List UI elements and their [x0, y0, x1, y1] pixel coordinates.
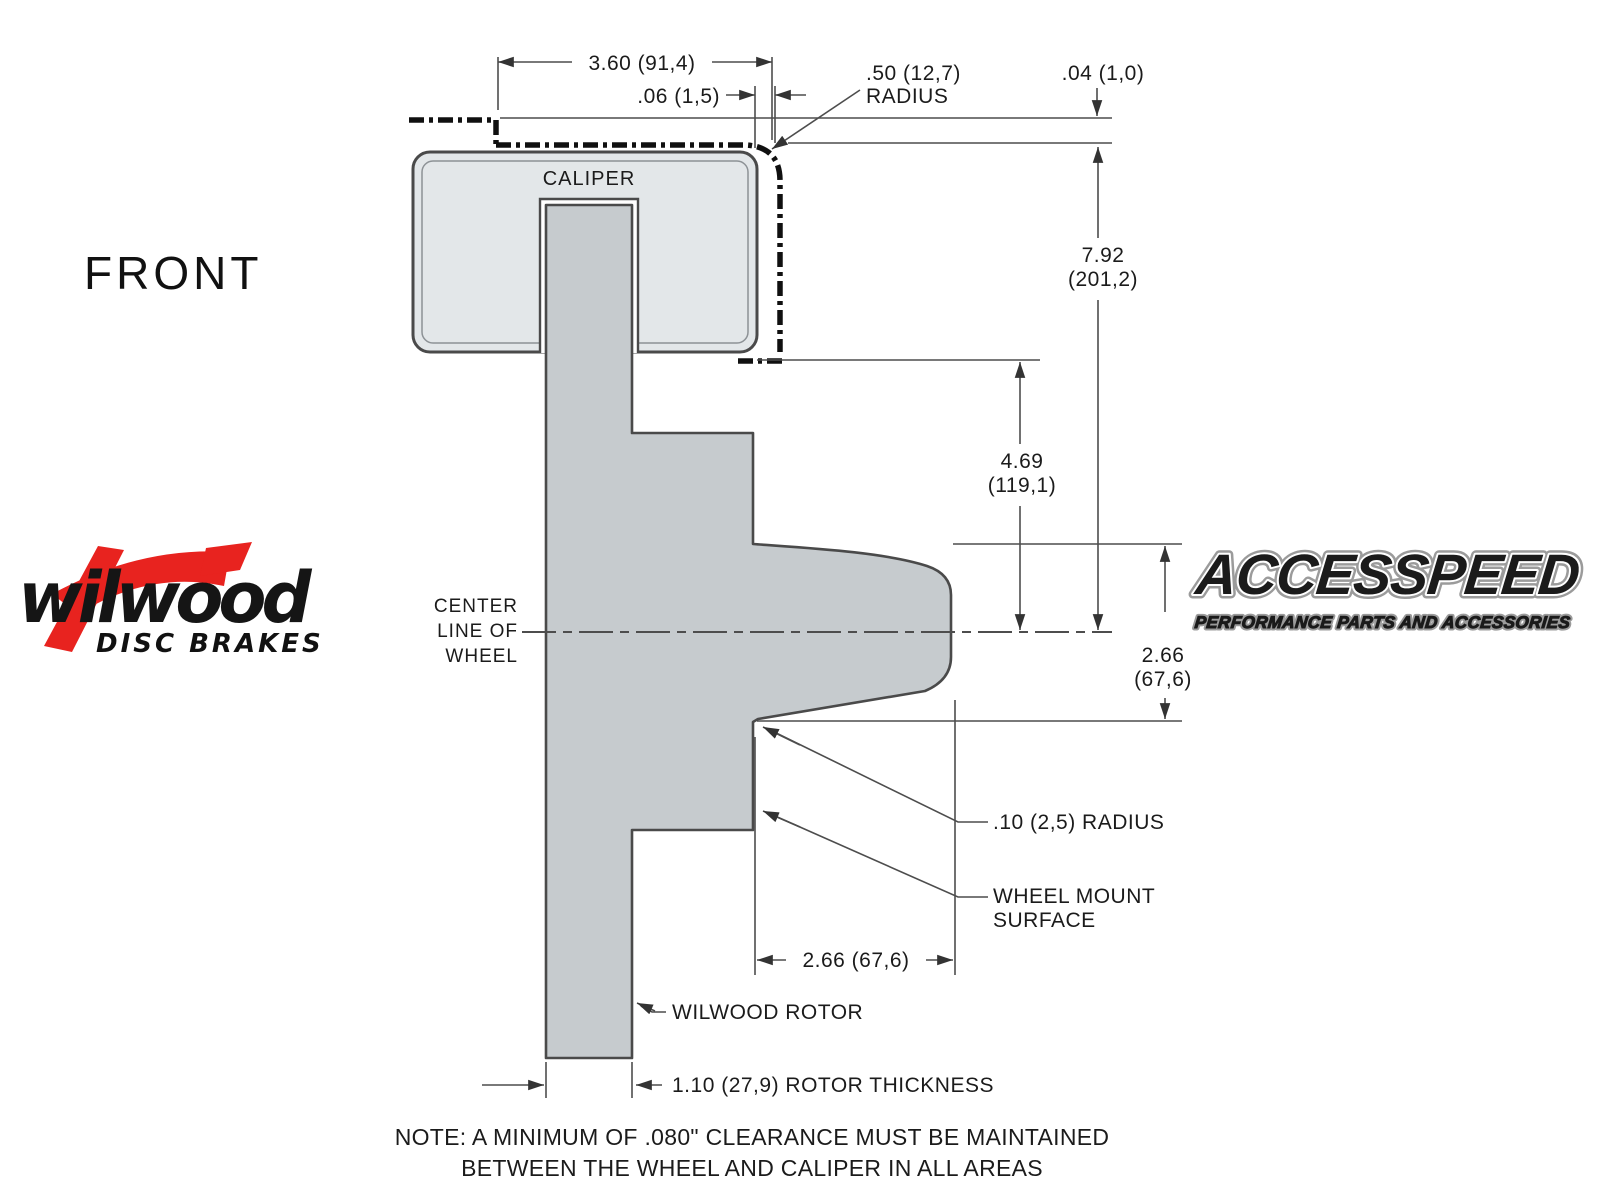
corner-radius-text-2: RADIUS [866, 85, 948, 108]
rotor-callout-text: WILWOOD ROTOR [672, 1001, 863, 1024]
note-line-1: NOTE: A MINIMUM OF .080" CLEARANCE MUST … [395, 1124, 1110, 1150]
callout-rotor: WILWOOD ROTOR [637, 1001, 863, 1024]
dim-wheel-clearance-text: .04 (1,0) [1062, 62, 1145, 85]
centerline-label-2: LINE OF [437, 621, 518, 642]
callout-fillet-radius: .10 (2,5) RADIUS [763, 727, 1164, 834]
dim-wheel-clearance: .04 (1,0) [1062, 62, 1145, 116]
caliper-label: CALIPER [543, 168, 636, 190]
wilwood-tagline-text: DISC BRAKES [96, 629, 324, 659]
note-block: NOTE: A MINIMUM OF .080" CLEARANCE MUST … [395, 1124, 1110, 1181]
dim-caliper-width-text: 3.60 (91,4) [588, 52, 695, 75]
dim-caliper-width: 3.60 (91,4) [498, 52, 772, 140]
centerline-label: CENTER LINE OF WHEEL [434, 596, 518, 667]
rotor-thickness-text: 1.10 (27,9) ROTOR THICKNESS [672, 1074, 994, 1097]
dim-caliper-wheel-gap-text: .06 (1,5) [637, 85, 720, 108]
wheel-mount-text-2: SURFACE [993, 909, 1096, 932]
dim-mount-offset: 2.66 (67,6) [755, 700, 955, 975]
dim-mount-offset-text: 2.66 (67,6) [802, 949, 909, 972]
wheel-mount-text-1: WHEEL MOUNT [993, 885, 1155, 908]
wilwood-logo: wilwood DISC BRAKES [18, 542, 324, 659]
centerline-label-1: CENTER [434, 596, 518, 617]
callout-corner-radius: .50 (12,7) RADIUS [772, 62, 961, 149]
brake-clearance-diagram: 3.60 (91,4) .06 (1,5) .50 (12,7) RADIUS … [0, 0, 1600, 1200]
dim-wheel-depth-text-1: 7.92 [1082, 244, 1125, 267]
dim-hat-depth-text-2: (67,6) [1134, 668, 1192, 691]
dim-rotor-thickness: 1.10 (27,9) ROTOR THICKNESS [482, 1062, 994, 1098]
dim-wheel-depth-text-2: (201,2) [1068, 268, 1138, 291]
view-label: FRONT [84, 247, 262, 299]
wilwood-brand-text: wilwood [18, 557, 313, 639]
note-line-2: BETWEEN THE WHEEL AND CALIPER IN ALL ARE… [461, 1155, 1043, 1181]
dim-wheel-depth: 7.92 (201,2) [1068, 147, 1138, 630]
dim-caliper-depth-text-1: 4.69 [1001, 450, 1044, 473]
dim-caliper-wheel-gap: .06 (1,5) [637, 85, 806, 148]
accesspeed-tagline-text: PERFORMANCE PARTS AND ACCESSORIES [1194, 613, 1572, 632]
centerline-label-3: WHEEL [445, 646, 518, 667]
dim-hat-depth-text-1: 2.66 [1142, 644, 1185, 667]
accesspeed-brand-text: ACCESSPEED [1191, 543, 1582, 607]
accesspeed-logo: ACCESSPEED ACCESSPEED PERFORMANCE PARTS … [1188, 543, 1582, 632]
fillet-radius-text: .10 (2,5) RADIUS [993, 811, 1164, 834]
drawing-canvas: 3.60 (91,4) .06 (1,5) .50 (12,7) RADIUS … [0, 0, 1600, 1200]
dim-caliper-depth-text-2: (119,1) [988, 474, 1056, 497]
corner-radius-text-1: .50 (12,7) [866, 62, 961, 85]
